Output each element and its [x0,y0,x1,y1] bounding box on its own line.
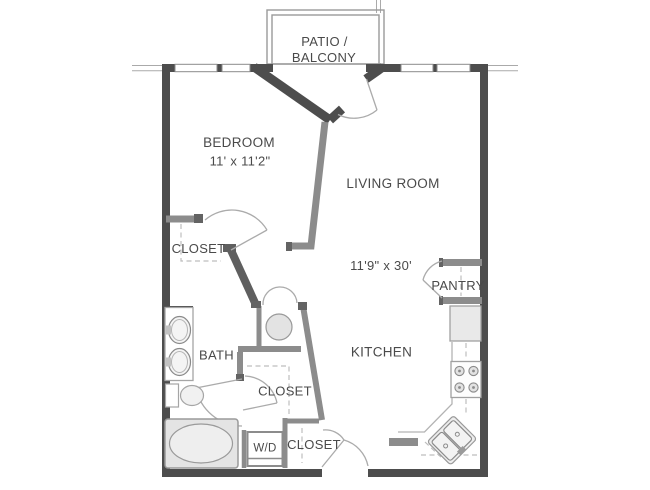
kitchen-counter-end-wall [389,438,418,446]
closet-middle-label: CLOSET [258,384,312,399]
floorplan-drawing: PATIO / BALCONY BEDROOM 11' x 11'2" LIVI… [0,0,650,490]
kitchen-label: KITCHEN [351,345,412,360]
closet-lower-label: CLOSET [287,437,341,452]
living-room-dimensions: 11'9" x 30' [350,258,412,273]
patio-flare-walls [254,67,383,120]
living-room-label: LIVING ROOM [346,176,439,191]
bathtub [165,419,238,468]
pantry-label: PANTRY [431,278,484,293]
closet-left-label: CLOSET [172,241,226,256]
hall-angled-wall [223,248,256,305]
refrigerator [450,306,481,341]
patio-label-line1: PATIO / [301,34,347,49]
patio-label-line2: BALCONY [292,50,356,65]
bedroom-dimensions: 11' x 11'2" [210,154,271,169]
interior-walls [166,122,325,468]
floorplan: PATIO / BALCONY BEDROOM 11' x 11'2" LIVI… [0,0,650,490]
stove [451,362,481,398]
washer-dryer-label: W/D [253,443,276,455]
toilet [166,384,204,407]
water-heater-circle [266,314,292,340]
bath-label: BATH [199,348,234,363]
vanity-double-sink [165,308,193,381]
window-bedroom [175,64,250,71]
bedroom-label: BEDROOM [203,135,275,150]
kitchen-corner-sink [427,416,476,465]
